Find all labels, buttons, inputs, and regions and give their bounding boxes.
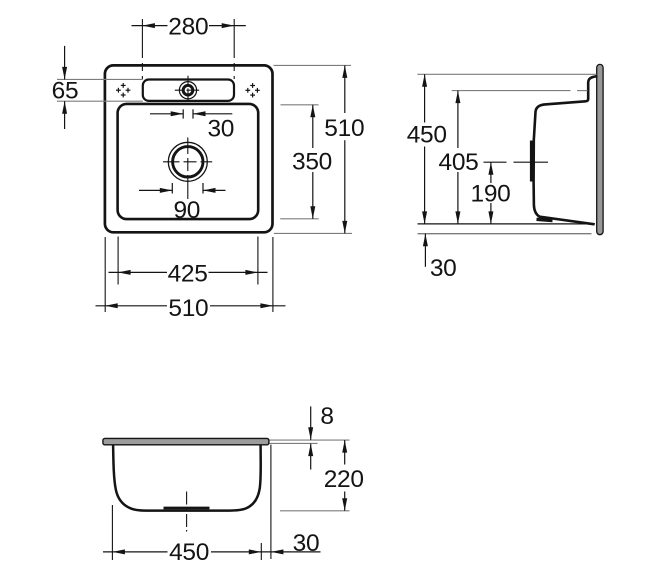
svg-text:450: 450: [407, 122, 447, 149]
svg-text:30: 30: [293, 530, 320, 557]
svg-text:510: 510: [168, 295, 208, 322]
svg-text:30: 30: [207, 116, 234, 143]
svg-text:190: 190: [471, 180, 511, 207]
svg-text:510: 510: [324, 115, 364, 142]
svg-text:405: 405: [439, 149, 479, 176]
svg-text:90: 90: [173, 197, 200, 224]
svg-text:8: 8: [320, 403, 333, 430]
svg-text:350: 350: [292, 148, 332, 175]
svg-text:220: 220: [324, 466, 364, 493]
svg-text:65: 65: [52, 78, 79, 105]
svg-text:30: 30: [430, 255, 457, 282]
svg-text:280: 280: [168, 14, 208, 41]
svg-text:425: 425: [168, 261, 208, 288]
svg-text:450: 450: [169, 539, 209, 566]
